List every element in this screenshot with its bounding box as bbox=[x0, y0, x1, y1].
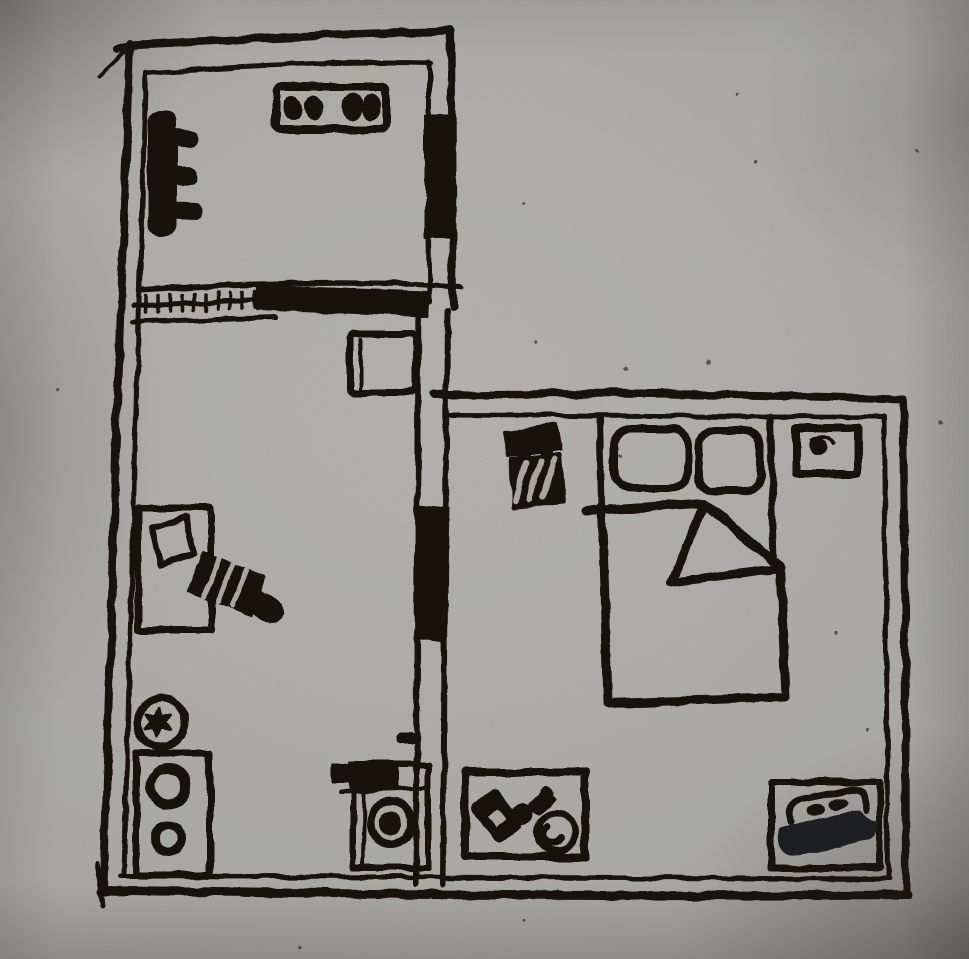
paper-sheet: hand-drawn apartment floor plan bbox=[0, 0, 969, 959]
floor-plan-sketch bbox=[0, 0, 969, 959]
paper-grain-texture bbox=[0, 0, 969, 959]
